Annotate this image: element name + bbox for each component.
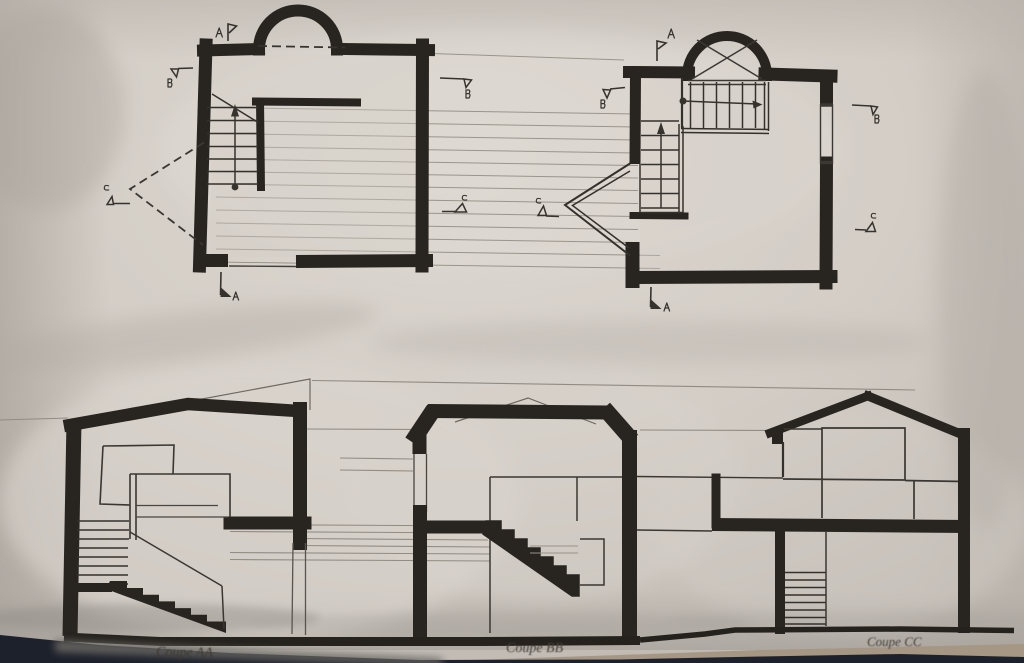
svg-text:Coupe CC: Coupe CC bbox=[867, 634, 922, 649]
svg-text:Coupe AA: Coupe AA bbox=[156, 645, 214, 661]
svg-text:Coupe BB: Coupe BB bbox=[506, 641, 564, 656]
